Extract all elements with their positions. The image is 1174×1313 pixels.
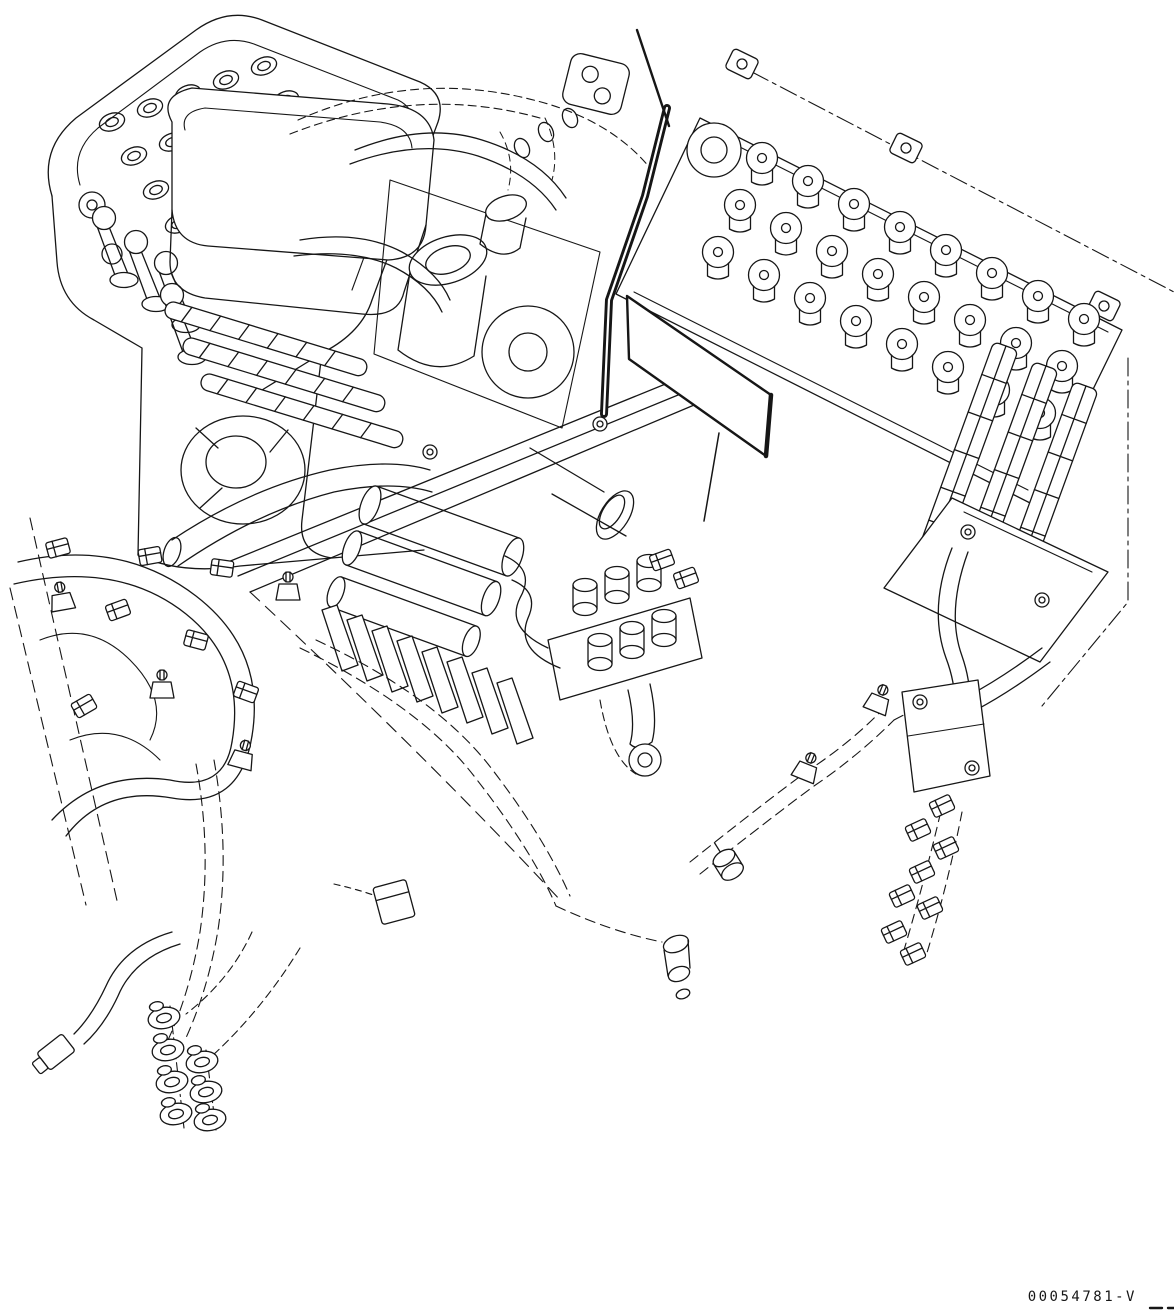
plate-leader-line (704, 433, 719, 521)
wire-duct-fins (322, 605, 533, 744)
connector-cascade (881, 794, 960, 966)
left-harness (14, 537, 415, 1040)
console-slide-rails (163, 300, 405, 450)
branch-connector (704, 836, 746, 883)
drawing-number: 00054781-V (1028, 1289, 1137, 1305)
round-connector (661, 932, 692, 1001)
panel-tray (884, 498, 1108, 662)
plate-callout (604, 30, 771, 521)
solenoid-valve-block (505, 549, 702, 776)
blank-plate (627, 296, 771, 456)
parts-illustration (0, 0, 1174, 1313)
square-connector (373, 879, 416, 925)
callout-leader-line (637, 30, 669, 126)
armrest (168, 88, 434, 315)
parts-diagram-page: 00054781-V (0, 0, 1174, 1313)
ring-terminal-stacks (29, 932, 300, 1134)
dangling-connector (29, 1033, 76, 1076)
hinge-bracket (561, 52, 632, 117)
center-bottom-harness (300, 640, 942, 1001)
harness-bracket (902, 680, 990, 792)
